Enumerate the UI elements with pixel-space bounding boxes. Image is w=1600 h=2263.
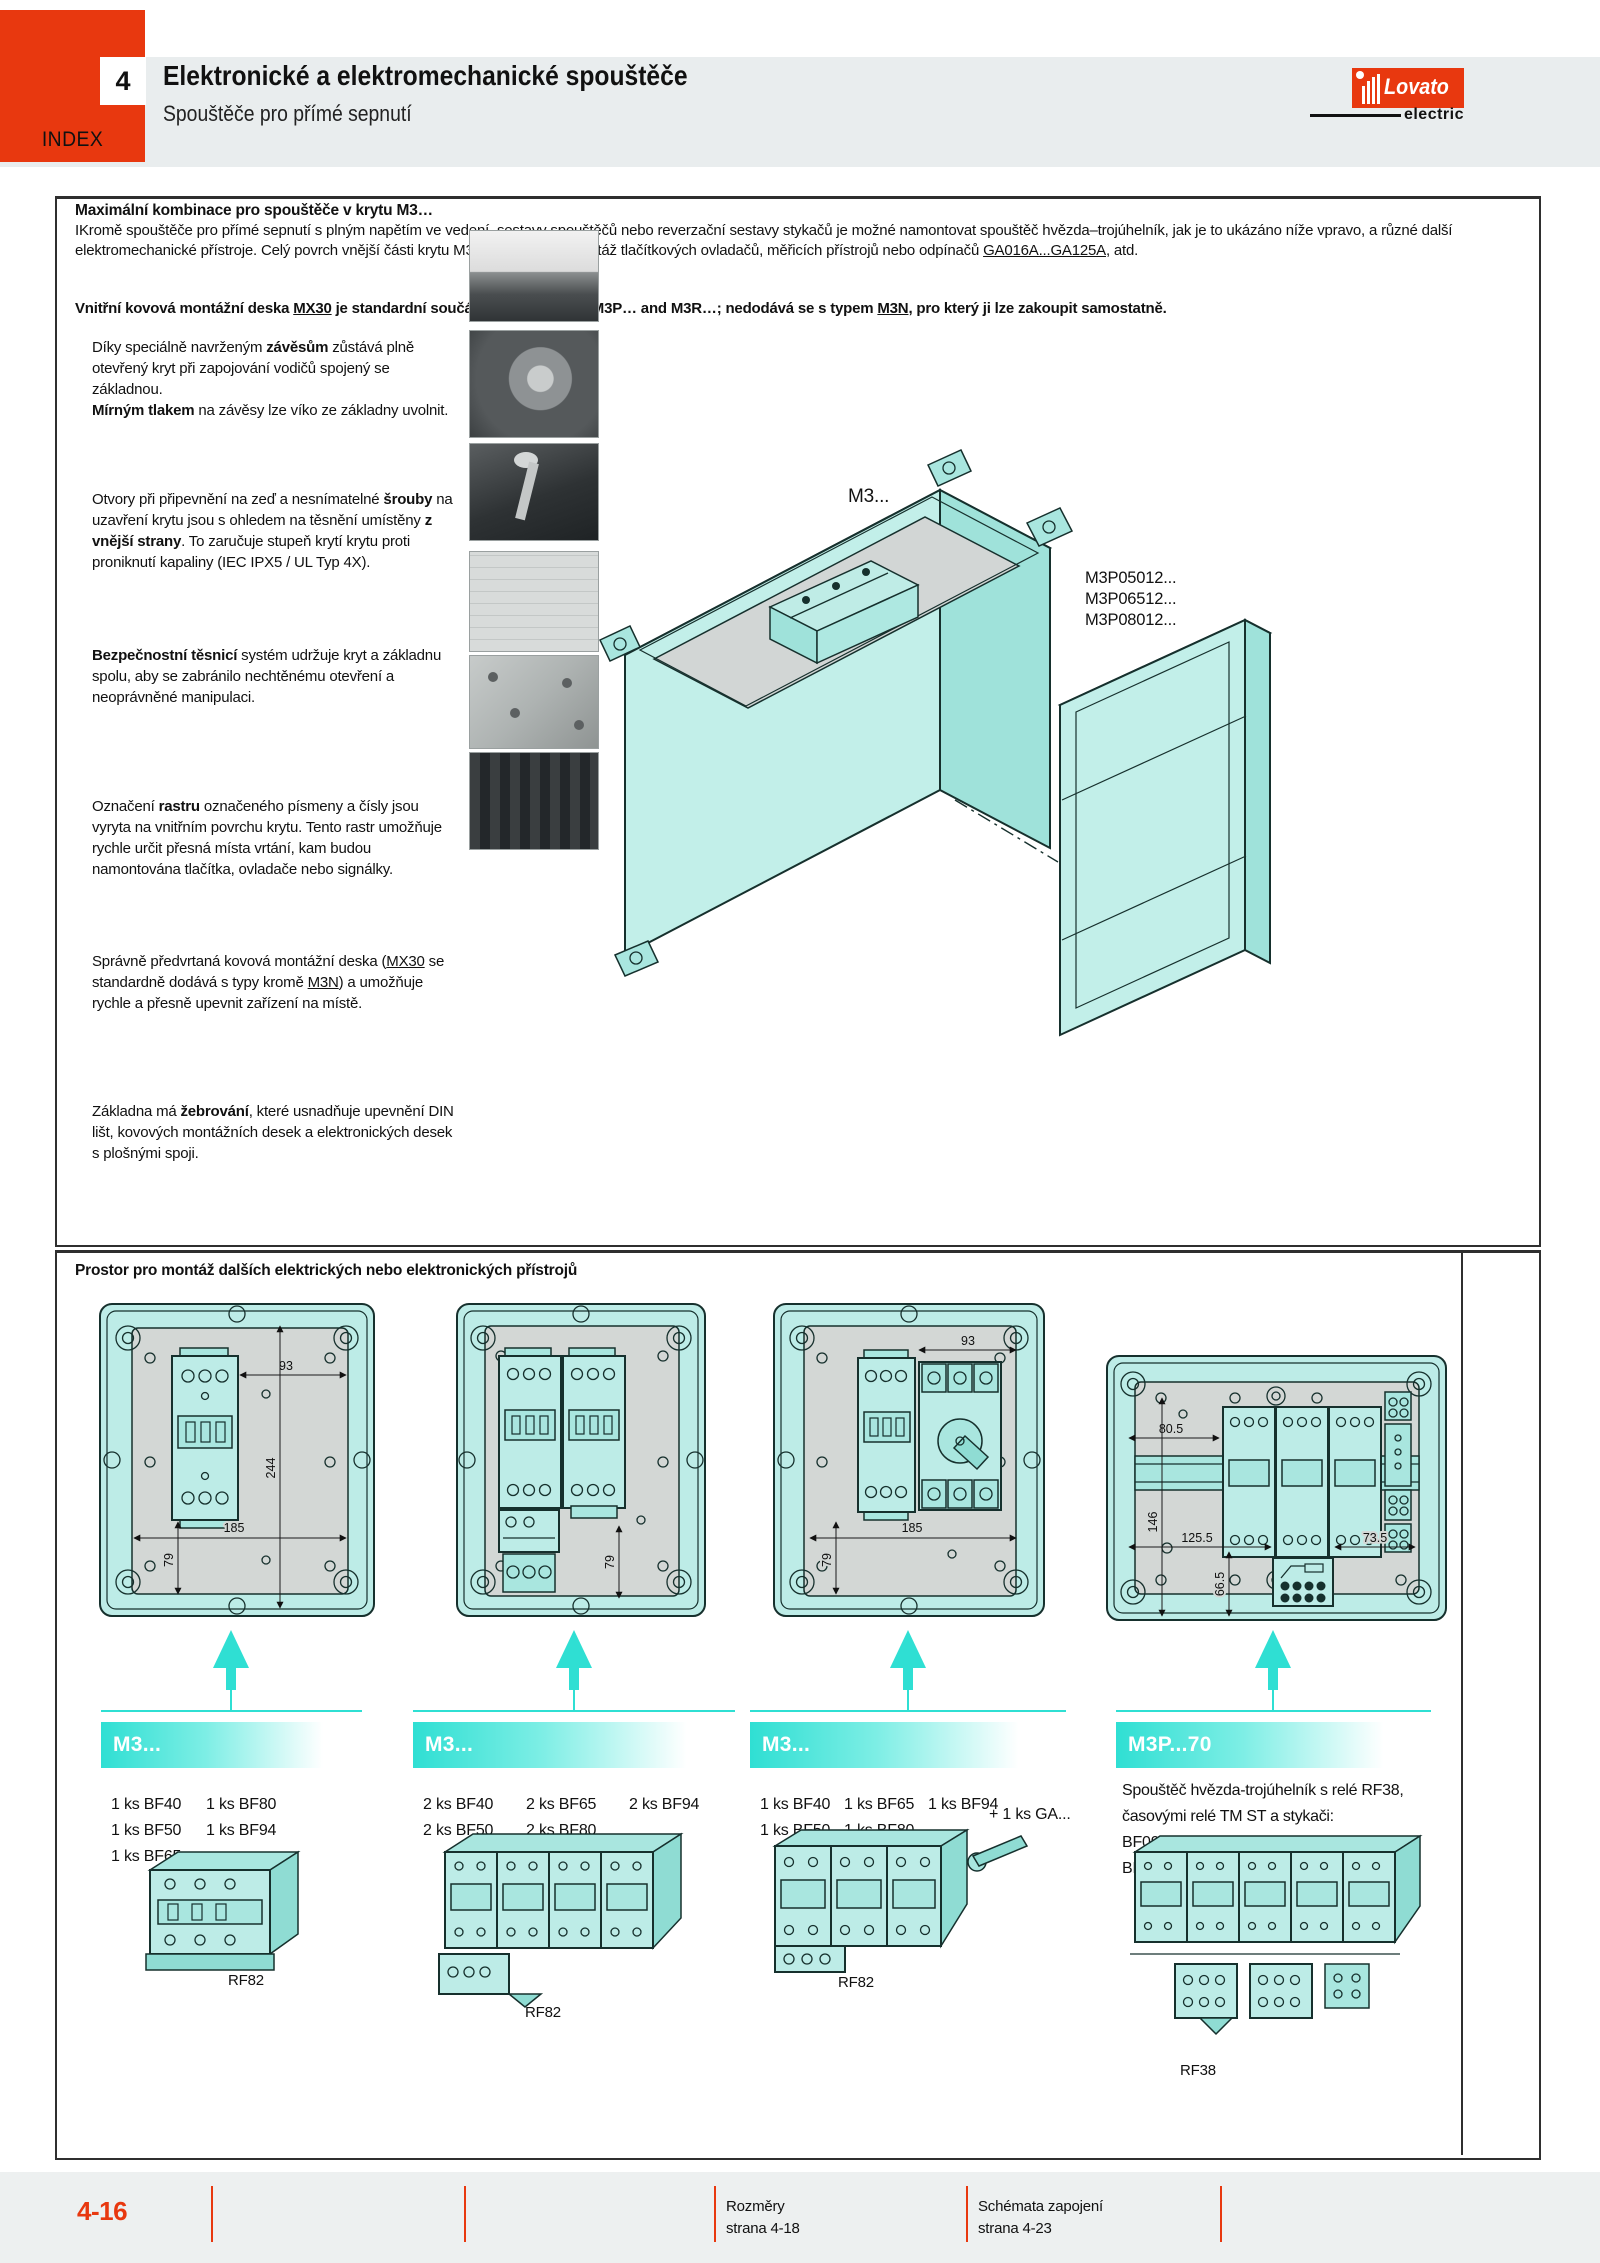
connector-line: [1116, 1710, 1431, 1712]
footer-divider: [1220, 2186, 1222, 2242]
footer-band: [0, 2172, 1600, 2263]
arrow-stem-line: [230, 1690, 232, 1712]
footer-divider: [464, 2186, 466, 2242]
dimension-drawing-4: 80.5 146 125.5 66.5 73.5: [1105, 1352, 1450, 1624]
section1-note: Vnitřní kovová montážní deska MX30 je st…: [75, 300, 1520, 317]
column1-header: M3...: [101, 1733, 161, 1757]
footer-ref-dimensions: Rozměry strana 4-18: [726, 2196, 800, 2240]
footer-divider: [714, 2186, 716, 2242]
chapter-number: 4: [115, 66, 130, 97]
arrow-stem-line: [1272, 1690, 1274, 1712]
arrow-stem: [569, 1668, 579, 1690]
svg-text:79: 79: [820, 1553, 834, 1567]
svg-text:73.5: 73.5: [1363, 1531, 1387, 1545]
svg-text:79: 79: [162, 1553, 176, 1567]
relay: [499, 1510, 559, 1592]
product-contactor-3: [725, 1818, 1035, 1978]
product-label: RF82: [838, 1974, 874, 1991]
logo-sub: electric: [1404, 106, 1464, 124]
illustration-part-numbers: M3P05012... M3P06512... M3P08012...: [1085, 568, 1176, 631]
logo-sub-row: electric: [1310, 106, 1464, 124]
paragraph-hinges: Díky speciálně navrženým závěsům zůstává…: [92, 337, 454, 421]
section2-heading: Prostor pro montáž dalších elektrických …: [75, 1262, 577, 1280]
column1-header-bar: M3...: [101, 1722, 362, 1768]
contactor-row: [1223, 1407, 1381, 1557]
product-label: RF82: [228, 1972, 264, 1989]
column2-header: M3...: [413, 1733, 473, 1757]
svg-text:93: 93: [279, 1359, 293, 1373]
contactor: [172, 1348, 238, 1528]
paragraph-sealing: Bezpečnostní těsnicí systém udržuje kryt…: [92, 645, 454, 708]
footer-page-number: 4-16: [77, 2196, 127, 2227]
svg-text:66.5: 66.5: [1213, 1572, 1227, 1596]
product-starter-assembly: [1080, 1822, 1450, 2072]
paragraph-screws: Otvory při připevnění na zeď a nesnímate…: [92, 489, 454, 573]
arrow-stem: [226, 1668, 236, 1690]
logo-stripe: [1372, 77, 1375, 104]
enclosure-base: [600, 450, 1072, 976]
column3-header: M3...: [750, 1733, 810, 1757]
connector-line: [101, 1710, 362, 1712]
dimension-drawing-3: 93 185 79: [772, 1298, 1046, 1622]
column3-header-bar: M3...: [750, 1722, 1066, 1768]
arrow-stem: [903, 1668, 913, 1690]
contactor-pair: [499, 1348, 625, 1518]
catalog-page: 4 INDEX Elektronické a elektromechanické…: [0, 0, 1600, 2263]
logo-rule: [1310, 114, 1401, 117]
product-contactor-2: [405, 1822, 735, 2007]
svg-text:79: 79: [603, 1555, 617, 1569]
svg-text:146: 146: [1146, 1512, 1160, 1533]
arrow-stem-line: [573, 1690, 575, 1712]
paragraph-plate: Správně předvrtaná kovová montážní deska…: [92, 951, 454, 1014]
part-number: M3P08012...: [1085, 610, 1176, 631]
arrow-stem-line: [907, 1690, 909, 1712]
footer-divider: [966, 2186, 968, 2242]
arrow-stem: [1268, 1668, 1278, 1690]
section1-heading: Maximální kombinace pro spouštěče v kryt…: [75, 202, 433, 220]
column4-header-bar: M3P...70: [1116, 1722, 1431, 1768]
svg-text:244: 244: [264, 1458, 278, 1479]
relay: [1273, 1558, 1333, 1606]
index-label: INDEX: [6, 128, 139, 152]
footer-ref-wiring: Schémata zapojení strana 4-23: [978, 2196, 1103, 2240]
footer-ref-label: Schémata zapojení: [978, 2196, 1103, 2218]
logo-stripe: [1362, 86, 1365, 104]
footer-ref-page: strana 4-23: [978, 2218, 1103, 2240]
connector-line: [750, 1710, 1066, 1712]
logo-stripe: [1367, 81, 1370, 104]
svg-text:185: 185: [224, 1521, 245, 1535]
product-contactor-1: [120, 1842, 360, 1977]
footer-ref-page: strana 4-18: [726, 2218, 800, 2240]
arrow-up-icon: [1255, 1630, 1291, 1668]
part-number: M3P05012...: [1085, 568, 1176, 589]
footer-divider: [211, 2186, 213, 2242]
logo-brand: Lovato: [1384, 74, 1449, 100]
terminal-blocks: [1385, 1392, 1411, 1552]
arrow-up-icon: [213, 1630, 249, 1668]
arrow-up-icon: [890, 1630, 926, 1668]
logo-stripe: [1377, 74, 1380, 104]
product-label: RF82: [525, 2004, 561, 2021]
logo-dot-icon: [1356, 71, 1364, 79]
enclosure-lid: [1060, 620, 1270, 1035]
part-number: M3P06512...: [1085, 589, 1176, 610]
paragraph-raster: Označení rastru označeného písmeny a čís…: [92, 796, 454, 880]
svg-text:185: 185: [902, 1521, 923, 1535]
column2-header-bar: M3...: [413, 1722, 735, 1768]
switch-disconnector: [919, 1362, 1001, 1510]
svg-text:93: 93: [961, 1334, 975, 1348]
section1-intro: IKromě spouštěče pro přímé sepnutí s pln…: [75, 221, 1520, 260]
hinges-photo: [470, 231, 598, 321]
column4-header: M3P...70: [1116, 1733, 1212, 1757]
inner-divider: [1461, 1250, 1463, 2155]
contactor: [858, 1350, 915, 1520]
illustration-label: M3...: [848, 486, 889, 508]
dimension-drawing-2: 79: [455, 1298, 707, 1622]
enclosure-isometric-drawing: [540, 330, 1310, 1250]
connector-line: [413, 1710, 735, 1712]
page-subtitle: Spouštěče pro přímé sepnutí: [163, 101, 412, 127]
arrow-up-icon: [556, 1630, 592, 1668]
page-title: Elektronické a elektromechanické spouště…: [163, 60, 688, 92]
footer-ref-label: Rozměry: [726, 2196, 800, 2218]
paragraph-ribbing: Základna má žebrování, které usnadňuje u…: [92, 1101, 454, 1164]
chapter-number-box: 4: [100, 57, 146, 105]
product-label: RF38: [1180, 2062, 1216, 2079]
dimension-drawing-1: 93 244 185 79: [98, 1298, 376, 1622]
svg-text:125.5: 125.5: [1181, 1531, 1212, 1545]
